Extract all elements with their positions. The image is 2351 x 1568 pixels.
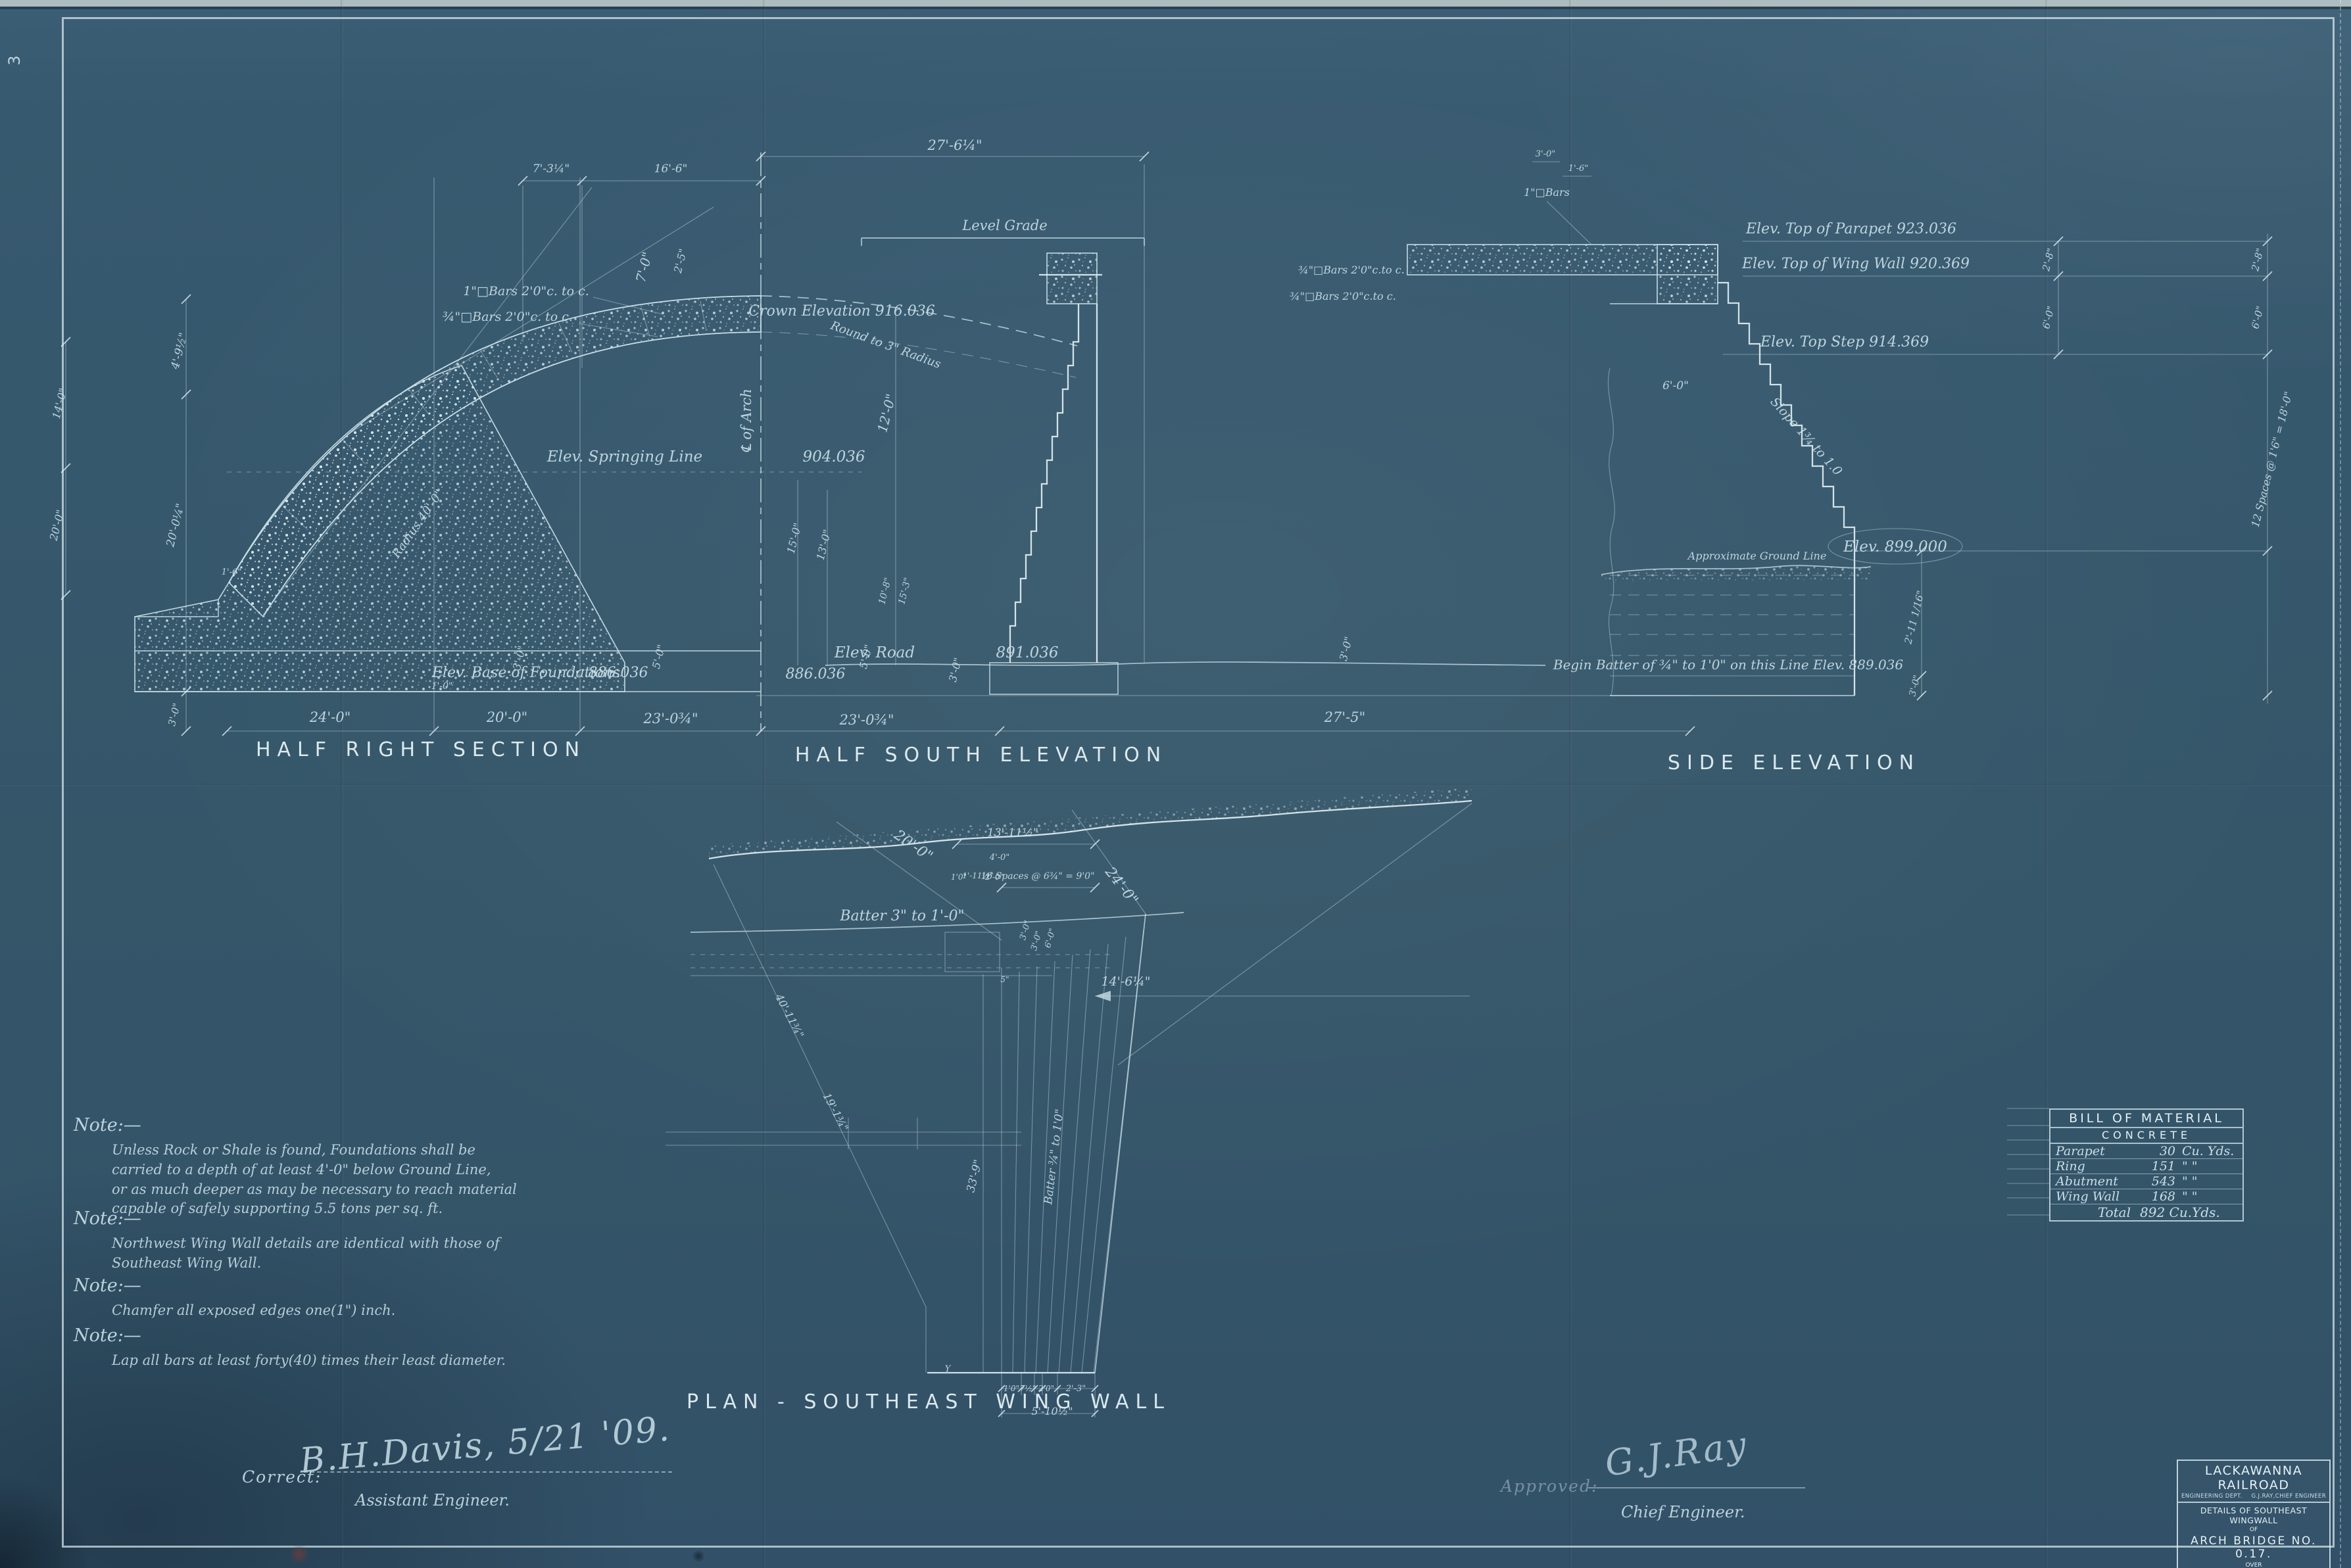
dimension-label: 904.036	[802, 448, 865, 465]
dimension-label: Elev. Top of Parapet 923.036	[1745, 221, 1956, 237]
dimension-label: 15'-0"	[785, 521, 804, 555]
dimension-label: 3'-0"	[166, 702, 183, 727]
wingwall-footing	[990, 663, 1118, 694]
dimension-label: 13'-0"	[814, 528, 834, 561]
note-lead: Note:—	[74, 1275, 521, 1296]
dimension-label: 23'-0¾"	[839, 712, 894, 728]
dimension-label: Begin Batter of ¾" to 1'0" on this Line …	[1553, 657, 1904, 673]
dimension-label: 3'-0"	[1337, 635, 1355, 662]
note-body: Unless Rock or Shale is found, Foundatio…	[112, 1141, 521, 1219]
dimension-label: Elev. Top of Wing Wall 920.369	[1741, 256, 1970, 272]
bill-total-label: Total	[2050, 1204, 2140, 1220]
table-row: Abutment 543 " "	[2050, 1174, 2242, 1189]
dimension-label: 16'-6"	[654, 162, 688, 176]
table-row: Parapet 30 Cu. Yds.	[2050, 1144, 2242, 1159]
dimension-label: 12'-0"	[874, 392, 899, 434]
dimension-label: 4'-9½"	[168, 331, 190, 371]
batter-hatch-fan	[1013, 930, 1144, 1373]
bill-qty: 168	[2133, 1189, 2175, 1204]
dimension-label: 1"□Bars 2'0"c. to c.	[463, 284, 589, 298]
bill-unit: " "	[2175, 1189, 2242, 1204]
bill-of-material-table: BILL OF MATERIAL CONCRETE Parapet 30 Cu.…	[2049, 1108, 2244, 1222]
bridge-number: ARCH BRIDGE NO. 0.17.	[2179, 1534, 2328, 1561]
break-line	[1608, 368, 1614, 696]
dimension-label: 19'-1¾"	[821, 1091, 851, 1133]
dimension-label: 1'-6"	[222, 567, 242, 577]
dimension-label: Elev. Springing Line	[546, 448, 702, 465]
buried-step-lines	[1610, 575, 1854, 655]
dimension-label: 2'0"	[1038, 1384, 1054, 1393]
bill-qty: 151	[2133, 1159, 2175, 1174]
dimension-label: 3'-0"	[946, 656, 965, 683]
chief-engineer-title: Chief Engineer.	[1621, 1503, 1745, 1521]
dimension-label: 27'-6¼"	[927, 137, 982, 153]
dimension-label: Level Grade	[961, 218, 1047, 233]
dimension-label: 40'-11¾"	[773, 991, 807, 1041]
bill-subtitle: CONCRETE	[2050, 1128, 2242, 1144]
elevation-reference-lines	[1723, 241, 2267, 551]
bill-total-value: 892 Cu.Yds.	[2140, 1204, 2242, 1220]
dimension-label: 24'-0"	[309, 709, 351, 725]
bill-unit: " "	[2175, 1159, 2242, 1174]
dimension-label: 6'-0"	[2249, 305, 2266, 330]
note-lead: Note:—	[74, 1115, 521, 1135]
dimension-label: Approximate Ground Line	[1687, 550, 1827, 562]
drawing-title-half-south-elevation: HALF SOUTH ELEVATION	[795, 744, 1167, 767]
table-row: Ring 151 " "	[2050, 1159, 2242, 1174]
table-row: Wing Wall 168 " "	[2050, 1189, 2242, 1204]
dimension-label: 2'-5"	[671, 247, 690, 275]
dimension-label: 27'-5"	[1324, 709, 1366, 725]
dimension-label: 1'0"	[1004, 1384, 1019, 1393]
dimension-label: 5'-0"	[650, 643, 668, 670]
bill-unit: Cu. Yds.	[2175, 1144, 2242, 1158]
company-name: LACKAWANNA RAILROAD	[2178, 1461, 2329, 1492]
dimension-label: 16 Spaces @ 6¾" = 9'0"	[981, 871, 1094, 882]
dimension-label: 20'-0"	[47, 508, 66, 542]
wingwall-steps	[1010, 304, 1079, 663]
dimension-label: 14'-6¼"	[1101, 974, 1150, 989]
bill-item: Wing Wall	[2050, 1189, 2133, 1204]
chief-engineer: G.J.RAY,CHIEF ENGINEER	[2251, 1493, 2326, 1500]
note-lead: Note:—	[74, 1208, 521, 1229]
dimension-label: Slope 1¾ to 1.0	[1767, 394, 1845, 479]
plan-drawing	[666, 788, 1472, 1417]
drawing-title-side-elevation: SIDE ELEVATION	[1668, 751, 1920, 774]
drawing-title-plan: PLAN - SOUTHEAST WING WALL	[687, 1390, 1171, 1414]
parapet-plan-outline	[945, 932, 1000, 972]
bill-item: Ring	[2050, 1159, 2133, 1174]
dimension-label: 6'-0"	[1043, 927, 1058, 949]
assistant-engineer-title: Assistant Engineer.	[355, 1491, 510, 1509]
dimension-label: 6'-0"	[2040, 305, 2057, 330]
dimension-label: 2'-8"	[2040, 247, 2057, 273]
dimension-label: 12 Spaces @ 1'6" = 18'-0"	[2249, 390, 2295, 529]
note-body: Lap all bars at least forty(40) times th…	[112, 1351, 521, 1371]
bill-qty: 30	[2133, 1144, 2175, 1158]
dimension-label: Crown Elevation 916.036	[748, 303, 935, 320]
side-elevation-drawing	[1407, 162, 2267, 703]
dimension-label: 1'-6"	[1568, 164, 1589, 174]
dimension-label: 10'-8"	[877, 577, 894, 606]
page-number: 3	[5, 55, 24, 65]
dimension-label: 5'-10½"	[1031, 1405, 1073, 1417]
dimension-label: 6'-0"	[1662, 379, 1689, 392]
dimension-label: ℄ of Arch	[739, 389, 754, 453]
dimension-label: Elev. Road	[834, 644, 915, 661]
note-lead: Note:—	[74, 1325, 521, 1346]
dimension-label: 14'-0"	[50, 387, 70, 420]
stain-mark	[692, 1550, 705, 1562]
dimension-label: ¾"□Bars 2'0"c.to c.	[1298, 264, 1405, 276]
note-northwest-wall: Note:— Northwest Wing Wall details are i…	[74, 1208, 521, 1273]
bill-total-row: Total 892 Cu.Yds.	[2050, 1204, 2242, 1220]
dimension-label: Elev. Top Step 914.369	[1760, 334, 1929, 350]
dimension-label: 886.036	[589, 665, 648, 681]
dimension-label: 3'-0"	[1536, 149, 1556, 159]
terrain-break-line	[709, 801, 1472, 859]
drawing-title-half-right-section: HALF RIGHT SECTION	[256, 738, 586, 761]
dimension-label: 20'-0"	[486, 709, 528, 725]
bill-item: Abutment	[2050, 1174, 2133, 1189]
dimension-label: Batter 3" to 1'-0"	[839, 908, 964, 924]
blueprint-sheet: HALF RIGHT SECTIONHALF SOUTH ELEVATIONSI…	[0, 0, 2351, 1568]
dimension-label: ¾"□Bars 2'0"c.to c.	[1290, 290, 1396, 302]
parapet-end-cap	[1047, 253, 1097, 304]
description-line2: OF	[2179, 1527, 2328, 1533]
department: ENGINEERING DEPT.	[2181, 1493, 2242, 1500]
dimension-label: Y	[945, 1364, 952, 1374]
description-line4: OVER	[2179, 1562, 2328, 1568]
dimension-label: 15'-3"	[896, 577, 913, 606]
stain-mark	[288, 1545, 310, 1563]
bill-rule-overhang	[2007, 1108, 2049, 1215]
dimension-label: 24'-0"	[1101, 864, 1141, 909]
title-block: LACKAWANNA RAILROAD ENGINEERING DEPT. G.…	[2177, 1460, 2331, 1568]
note-chamfer: Note:— Chamfer all exposed edges one(1")…	[74, 1275, 521, 1321]
dimension-label: 7½"	[1020, 1384, 1036, 1393]
dimension-label: 3'-0"	[1907, 674, 1922, 698]
dimension-label: 3'-0"	[1029, 930, 1044, 951]
dimension-label: 2'-11 1/16"	[1902, 589, 1927, 646]
note-lap-bars: Note:— Lap all bars at least forty(40) t…	[74, 1325, 521, 1371]
signature-line	[304, 1471, 672, 1473]
note-foundations: Note:— Unless Rock or Shale is found, Fo…	[74, 1115, 521, 1219]
drawing-description: DETAILS OF SOUTHEAST WINGWALL OF ARCH BR…	[2178, 1503, 2329, 1568]
dimension-label: Elev. 899.000	[1843, 538, 1947, 556]
dimension-label: 4'-0"	[989, 853, 1010, 863]
dimension-label: 891.036	[996, 644, 1058, 661]
dimension-label: 20'-0¼"	[164, 502, 187, 549]
dimension-label: 886.036	[786, 666, 846, 682]
dimension-label: 23'-0¾"	[643, 711, 698, 726]
dimension-label: Round to 3" Radius	[828, 318, 942, 371]
road-line	[825, 662, 1545, 665]
level-grade-line	[861, 238, 1144, 246]
dimension-label: 13'-11½"	[987, 826, 1038, 840]
bill-qty: 543	[2133, 1174, 2175, 1189]
dimension-label: ¾"□Bars 2'0"c. to c.	[443, 310, 573, 324]
bill-title: BILL OF MATERIAL	[2050, 1110, 2242, 1128]
dimension-label: 2'-8"	[2249, 247, 2266, 273]
dimension-label: 7'-3¼"	[533, 162, 570, 176]
dimension-label: 1"□Bars	[1524, 186, 1570, 199]
signature-line	[1588, 1487, 1805, 1488]
parapet-block	[1657, 245, 1718, 304]
approved-label: Approved:	[1501, 1477, 1598, 1496]
description-line1: DETAILS OF SOUTHEAST WINGWALL	[2179, 1506, 2328, 1525]
title-block-subrow: ENGINEERING DEPT. G.J.RAY,CHIEF ENGINEER	[2178, 1492, 2329, 1503]
dimension-label: 1'-0"	[431, 681, 453, 692]
dimension-label: 33'-9"	[964, 1158, 985, 1194]
note-body: Chamfer all exposed edges one(1") inch.	[112, 1301, 521, 1321]
bill-unit: " "	[2175, 1174, 2242, 1189]
dimension-label: 5"	[1000, 975, 1009, 984]
bill-item: Parapet	[2050, 1144, 2133, 1158]
dimension-label: 2'-3"	[1065, 1384, 1086, 1394]
note-body: Northwest Wing Wall details are identica…	[112, 1234, 521, 1273]
